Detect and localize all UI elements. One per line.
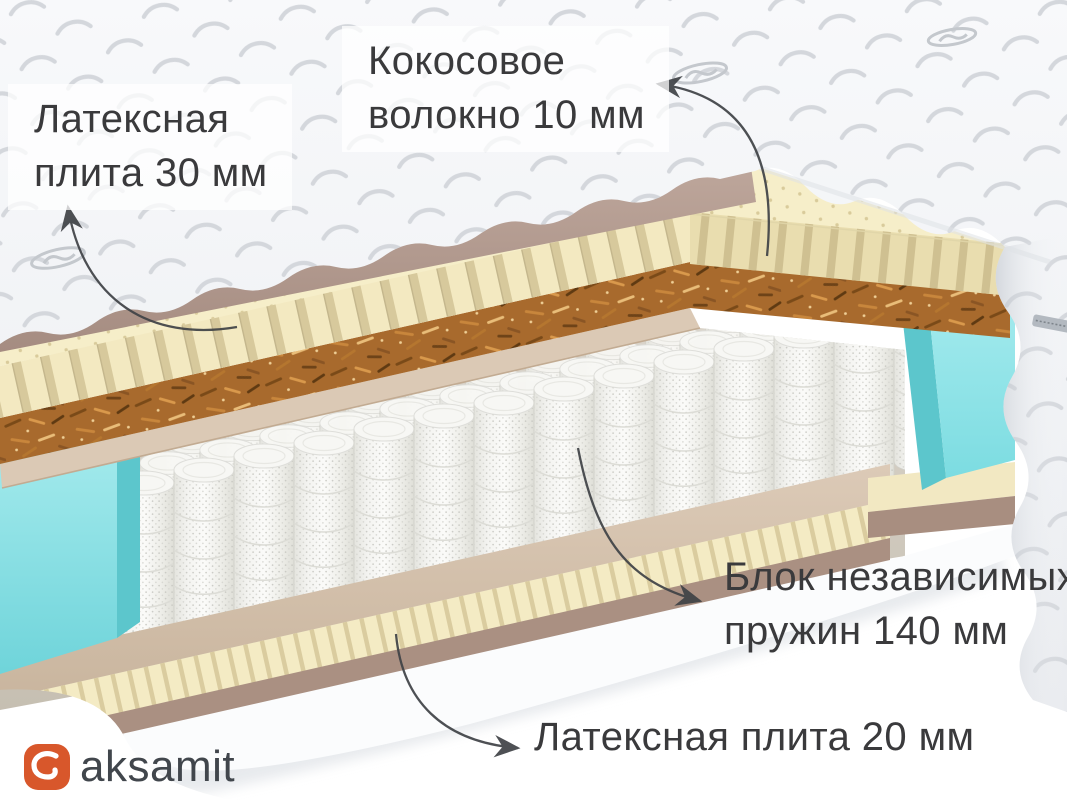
label-coconut-line2: волокно 10 мм <box>368 88 645 142</box>
logo-icon <box>24 744 70 790</box>
label-latex-bottom: Латексная плита 20 мм <box>534 710 974 764</box>
label-springs-line2: пружин 140 мм <box>724 604 1067 658</box>
label-coconut-line1: Кокосовое <box>368 34 645 88</box>
label-latex-top-line2: плита 30 мм <box>34 146 268 200</box>
label-latex-top: Латексная плита 30 мм <box>8 84 292 210</box>
brand-logo: aksamit <box>24 744 235 790</box>
mattress-diagram: Латексная плита 30 мм Кокосовое волокно … <box>0 0 1067 800</box>
label-latex-bottom-line1: Латексная плита 20 мм <box>534 710 974 764</box>
label-springs: Блок независимых пружин 140 мм <box>724 550 1067 658</box>
label-latex-top-line1: Латексная <box>34 92 268 146</box>
label-springs-line1: Блок независимых <box>724 550 1067 604</box>
label-coconut: Кокосовое волокно 10 мм <box>342 26 669 152</box>
logo-text: aksamit <box>80 744 235 790</box>
